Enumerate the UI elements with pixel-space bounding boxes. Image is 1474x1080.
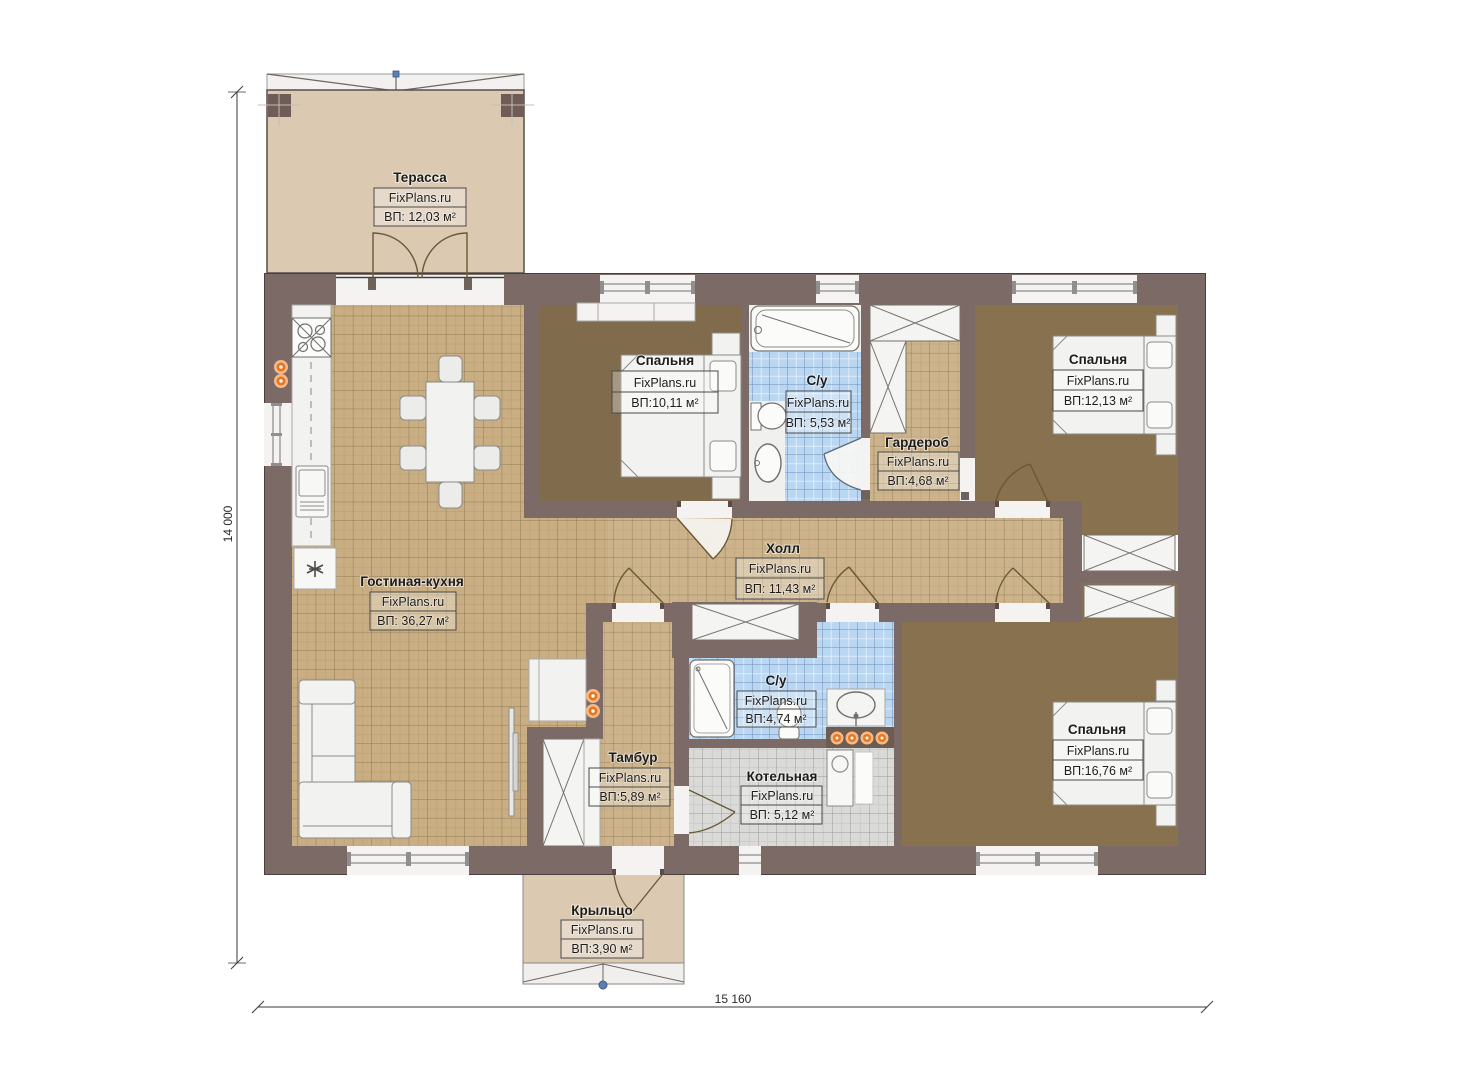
- svg-text:FixPlans.ru: FixPlans.ru: [571, 923, 634, 937]
- svg-text:Спальня: Спальня: [1069, 352, 1127, 367]
- svg-text:Холл: Холл: [766, 541, 800, 556]
- svg-text:FixPlans.ru: FixPlans.ru: [1067, 374, 1130, 388]
- svg-text:Гостиная-кухня: Гостиная-кухня: [360, 574, 463, 589]
- svg-text:С/у: С/у: [765, 673, 787, 688]
- svg-text:ВП:16,76 м²: ВП:16,76 м²: [1064, 764, 1132, 778]
- svg-text:FixPlans.ru: FixPlans.ru: [887, 455, 950, 469]
- svg-text:Котельная: Котельная: [747, 769, 818, 784]
- svg-text:ВП:12,13 м²: ВП:12,13 м²: [1064, 394, 1132, 408]
- svg-text:ВП:3,90 м²: ВП:3,90 м²: [571, 942, 632, 956]
- svg-text:Гардероб: Гардероб: [885, 435, 949, 450]
- svg-text:FixPlans.ru: FixPlans.ru: [745, 694, 808, 708]
- svg-text:Тамбур: Тамбур: [609, 750, 658, 765]
- svg-text:FixPlans.ru: FixPlans.ru: [787, 396, 850, 410]
- svg-text:14 000: 14 000: [221, 505, 235, 542]
- svg-text:ВП: 12,03 м²: ВП: 12,03 м²: [384, 210, 456, 224]
- svg-text:С/у: С/у: [806, 373, 828, 388]
- svg-text:FixPlans.ru: FixPlans.ru: [749, 562, 812, 576]
- svg-text:ВП: 5,53 м²: ВП: 5,53 м²: [786, 416, 851, 430]
- svg-text:FixPlans.ru: FixPlans.ru: [389, 191, 452, 205]
- svg-text:ВП: 11,43 м²: ВП: 11,43 м²: [745, 582, 816, 596]
- svg-text:ВП: 5,12 м²: ВП: 5,12 м²: [750, 808, 815, 822]
- svg-text:FixPlans.ru: FixPlans.ru: [751, 789, 814, 803]
- svg-text:Спальня: Спальня: [1068, 722, 1126, 737]
- svg-text:Спальня: Спальня: [636, 353, 694, 368]
- svg-text:ВП:4,74 м²: ВП:4,74 м²: [745, 712, 806, 726]
- svg-text:FixPlans.ru: FixPlans.ru: [1067, 744, 1130, 758]
- svg-text:Крыльцо: Крыльцо: [571, 903, 632, 918]
- svg-text:FixPlans.ru: FixPlans.ru: [382, 595, 445, 609]
- svg-text:ВП:10,11 м²: ВП:10,11 м²: [631, 396, 698, 410]
- svg-text:FixPlans.ru: FixPlans.ru: [634, 376, 697, 390]
- svg-text:ВП: 36,27 м²: ВП: 36,27 м²: [377, 614, 449, 628]
- svg-text:ВП:5,89 м²: ВП:5,89 м²: [599, 790, 660, 804]
- svg-text:FixPlans.ru: FixPlans.ru: [599, 771, 662, 785]
- svg-text:Терасса: Терасса: [393, 170, 447, 185]
- svg-text:ВП:4,68 м²: ВП:4,68 м²: [887, 474, 948, 488]
- svg-text:15 160: 15 160: [715, 992, 752, 1006]
